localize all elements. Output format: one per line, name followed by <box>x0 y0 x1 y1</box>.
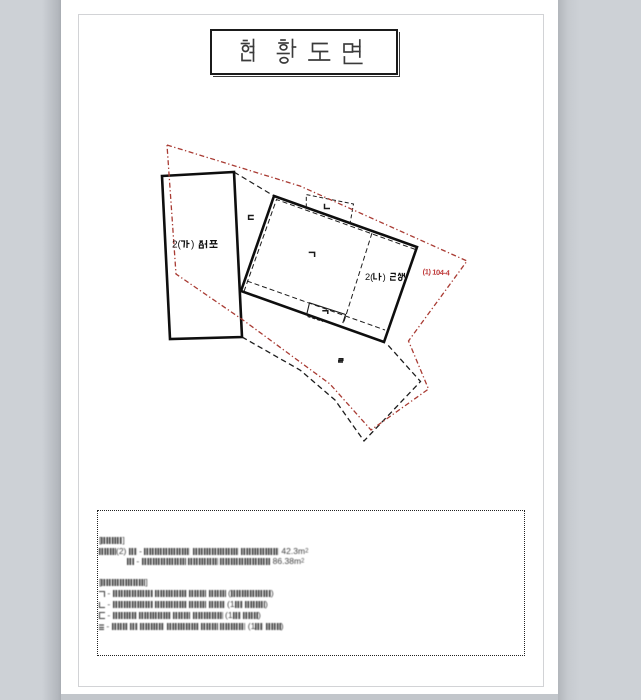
svg-text:): ) <box>191 240 194 251</box>
svg-text:(1) 104-4: (1) 104-4 <box>422 267 450 277</box>
svg-text:): ) <box>383 272 386 282</box>
svg-text:2(: 2( <box>365 272 374 282</box>
svg-text:2(: 2( <box>172 240 182 251</box>
